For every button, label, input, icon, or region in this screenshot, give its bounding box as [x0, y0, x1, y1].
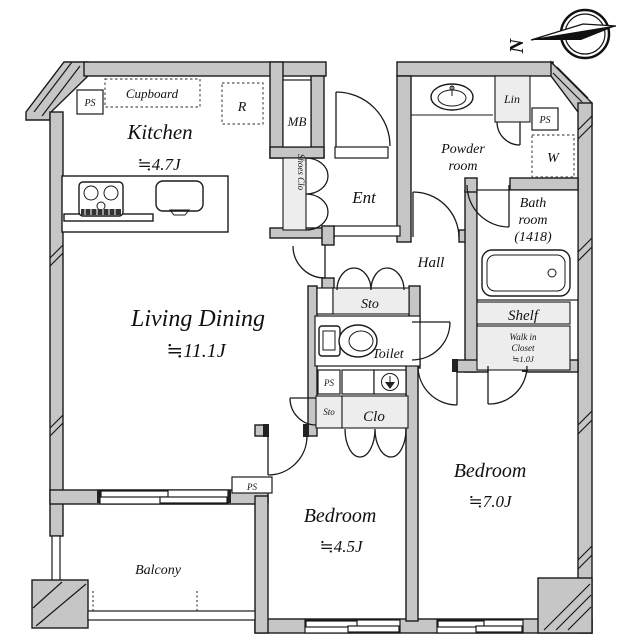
entrance-sill [335, 147, 388, 158]
shoes-clo-label: Shoes Clo [296, 154, 306, 191]
living-size: ≒11.1J [166, 340, 226, 362]
bathtub [482, 250, 570, 296]
kitchen-size: ≒4.7J [137, 155, 181, 174]
sto-hall-folding-doors [337, 268, 404, 290]
front-door [336, 92, 390, 147]
wall-living-hall-upper [322, 226, 334, 245]
bedroom-b-label: Bedroom [454, 460, 527, 482]
powder-door [413, 192, 459, 237]
linen-door [497, 122, 520, 145]
wall-sto-west [317, 288, 333, 314]
wall-kitchen-porch [270, 62, 283, 158]
ent-label: Ent [351, 188, 377, 207]
bedroom-a-door [268, 436, 307, 475]
toilet-fixture [319, 325, 377, 357]
wall-left [50, 112, 63, 536]
stove [79, 182, 123, 216]
washer-label: W [547, 151, 560, 166]
living-label: Living Dining [130, 306, 265, 332]
sto-hall-label: Sto [361, 297, 379, 312]
floor-plan-svg: N Kitchen ≒4.7J Living Dining ≒11.1J Bed… [0, 0, 640, 640]
balcony-structure [32, 536, 255, 628]
balcony-label: Balcony [135, 563, 182, 578]
wall-mb-right [311, 76, 324, 158]
clo-label: Clo [363, 409, 385, 425]
toilet-label: Toilet [372, 347, 404, 362]
sto-small-label: Sto [323, 407, 335, 417]
corner-bottom-right [538, 578, 592, 633]
powder-label-2: room [448, 159, 477, 174]
bath-label-3: (1418) [514, 230, 552, 245]
wall-balcony-right [255, 496, 268, 633]
hall-label: Hall [417, 255, 445, 271]
bedroom-a-label: Bedroom [304, 505, 377, 527]
wall-top-kitchen [84, 62, 326, 76]
ent-step [334, 226, 400, 236]
cupboard-label: Cupboard [126, 86, 179, 101]
wic-door [488, 366, 527, 404]
bath-label-2: room [518, 213, 547, 228]
compass-north-label: N [506, 37, 528, 54]
kitchen-sink [156, 181, 203, 215]
wall-powder-bath [510, 178, 578, 190]
ps-kitchen-label: PS [83, 98, 95, 109]
jamb-nub [303, 424, 309, 437]
powder-label-1: Powder [440, 142, 485, 157]
balcony-rail-left [52, 536, 60, 581]
balcony-rail-bottom [88, 611, 255, 620]
bedroom-a-size: ≒4.5J [319, 537, 363, 556]
ps-toilet-label: PS [323, 378, 334, 388]
shelf-label: Shelf [508, 308, 540, 324]
kitchen-counter [62, 176, 228, 232]
window-bedroom-b [437, 620, 523, 633]
jamb-nub [263, 424, 269, 437]
wic-label-3: ≒1.0J [512, 354, 535, 364]
bath-label-1: Bath [520, 196, 546, 211]
wic-label-2: Closet [511, 343, 535, 353]
clo-folding-doors [345, 429, 406, 457]
mb-label: MB [287, 114, 307, 129]
wic-label-1: Walk in [510, 332, 537, 342]
lin-label: Lin [503, 92, 520, 106]
refrigerator-label: R [237, 100, 247, 115]
wall-top-powder [397, 62, 553, 76]
bedroom-b-door [418, 366, 457, 405]
utility-box [342, 370, 374, 394]
window-bedroom-a [305, 620, 400, 633]
ps-powder-label: PS [538, 115, 550, 126]
wall-hall-bath [465, 190, 477, 372]
living-door [293, 245, 325, 278]
bedroom-b-size: ≒7.0J [468, 492, 512, 511]
window-living-south [100, 490, 228, 504]
shoes-closet-folding-doors [306, 158, 328, 230]
balcony-corner-block [32, 580, 88, 628]
compass: N [506, 10, 616, 58]
powder-basin [411, 84, 493, 115]
ps-balcony-label: PS [246, 482, 257, 492]
kitchen-label: Kitchen [126, 120, 192, 144]
wall-porch-powder [397, 76, 411, 242]
floor-plan: N Kitchen ≒4.7J Living Dining ≒11.1J Bed… [0, 0, 640, 640]
